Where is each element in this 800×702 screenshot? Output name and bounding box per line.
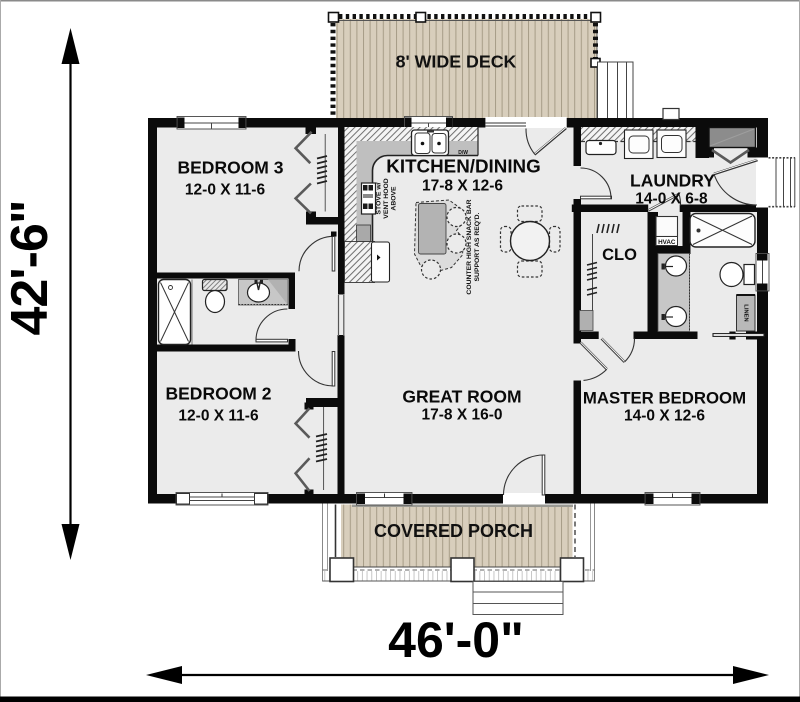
svg-text:COUNTER HIGH SNACK BAR: COUNTER HIGH SNACK BAR — [466, 199, 473, 294]
svg-text:BEDROOM 2: BEDROOM 2 — [166, 384, 272, 404]
svg-text:COVERED PORCH: COVERED PORCH — [374, 521, 533, 541]
svg-text:HVAC: HVAC — [658, 239, 676, 246]
svg-text:SUPPORT AS REQ'D.: SUPPORT AS REQ'D. — [474, 212, 481, 281]
svg-text:KITCHEN/DINING: KITCHEN/DINING — [386, 156, 540, 177]
svg-text:17-8 X 12-6: 17-8 X 12-6 — [422, 178, 503, 195]
svg-text:14-0 X 6-8: 14-0 X 6-8 — [635, 191, 708, 208]
svg-text:17-8 X 16-0: 17-8 X 16-0 — [422, 407, 503, 424]
svg-text:BEDROOM 3: BEDROOM 3 — [178, 158, 284, 178]
svg-text:GREAT ROOM: GREAT ROOM — [402, 387, 521, 407]
svg-text:14-0 X 12-6: 14-0 X 12-6 — [624, 408, 705, 425]
svg-text:ABOVE: ABOVE — [391, 186, 398, 211]
svg-text:42'-6": 42'-6" — [1, 200, 59, 335]
svg-text:LAUNDRY: LAUNDRY — [630, 171, 715, 191]
svg-text:8' WIDE DECK: 8' WIDE DECK — [396, 52, 517, 72]
svg-text:CLO: CLO — [602, 246, 637, 264]
svg-text:LINEN: LINEN — [743, 304, 749, 321]
svg-text:46'-0": 46'-0" — [388, 612, 524, 668]
svg-text:VENT HOOD: VENT HOOD — [383, 178, 390, 218]
svg-text:MASTER BEDROOM: MASTER BEDROOM — [583, 389, 746, 408]
svg-text:12-0 X 11-6: 12-0 X 11-6 — [178, 408, 259, 425]
svg-text:12-0 X 11-6: 12-0 X 11-6 — [185, 182, 266, 199]
svg-text:STOVE w/: STOVE w/ — [376, 182, 383, 214]
